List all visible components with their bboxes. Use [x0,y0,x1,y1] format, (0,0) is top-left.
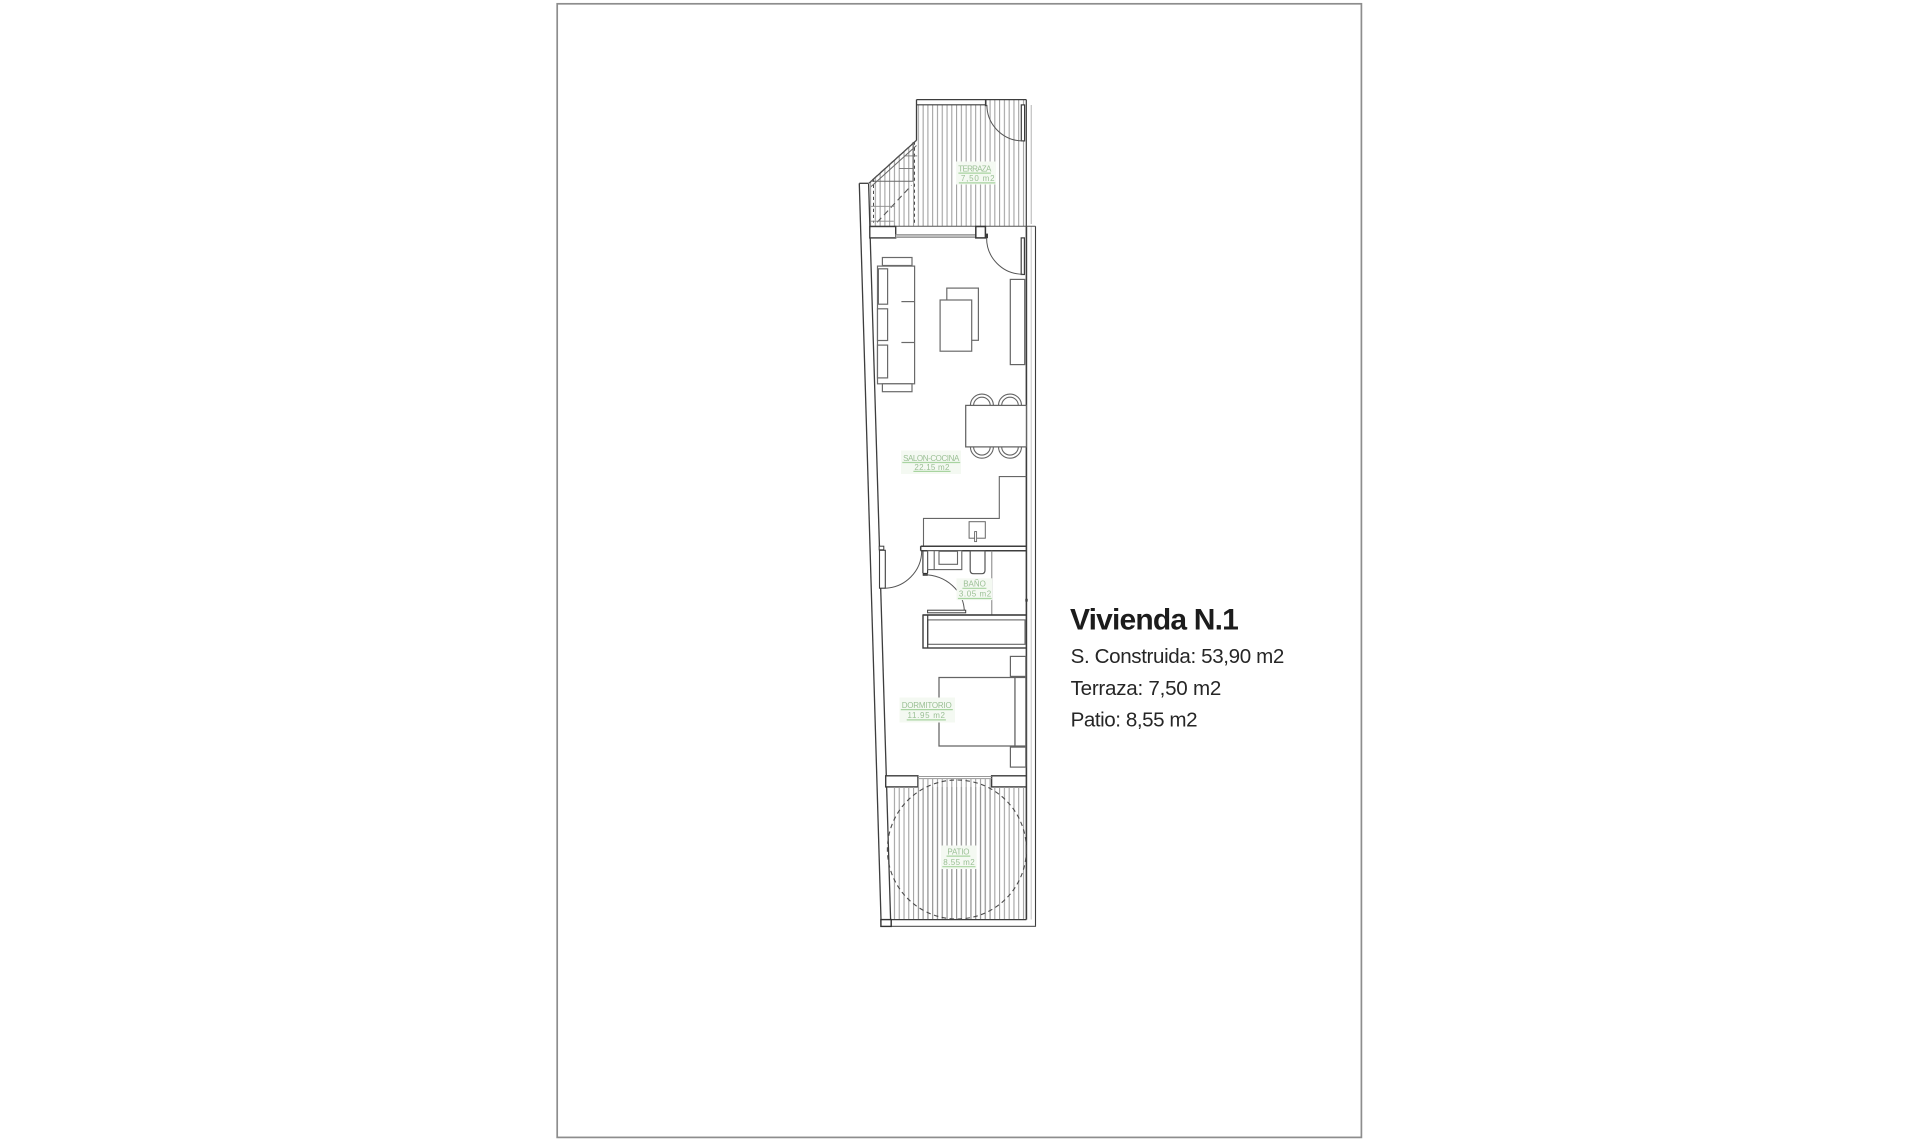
svg-text:Vivienda N.1: Vivienda N.1 [1070,603,1239,636]
svg-text:SALON-COCINA: SALON-COCINA [903,454,960,463]
svg-text:22.15 m2: 22.15 m2 [914,463,950,472]
svg-text:11.95 m2: 11.95 m2 [908,711,946,720]
svg-text:7,50 m2: 7,50 m2 [961,174,995,183]
svg-text:3.05 m2: 3.05 m2 [959,590,992,599]
svg-text:TERRAZA: TERRAZA [958,164,992,173]
svg-text:PATIO: PATIO [947,848,969,857]
svg-text:8.55 m2: 8.55 m2 [943,858,975,867]
svg-text:Terraza: 7,50 m2: Terraza: 7,50 m2 [1071,677,1222,700]
svg-text:DORMITORIO: DORMITORIO [902,701,952,710]
svg-text:BAÑO: BAÑO [963,579,986,588]
svg-text:Patio: 8,55 m2: Patio: 8,55 m2 [1071,708,1198,731]
svg-text:S. Construida: 53,90 m2: S. Construida: 53,90 m2 [1071,645,1285,668]
